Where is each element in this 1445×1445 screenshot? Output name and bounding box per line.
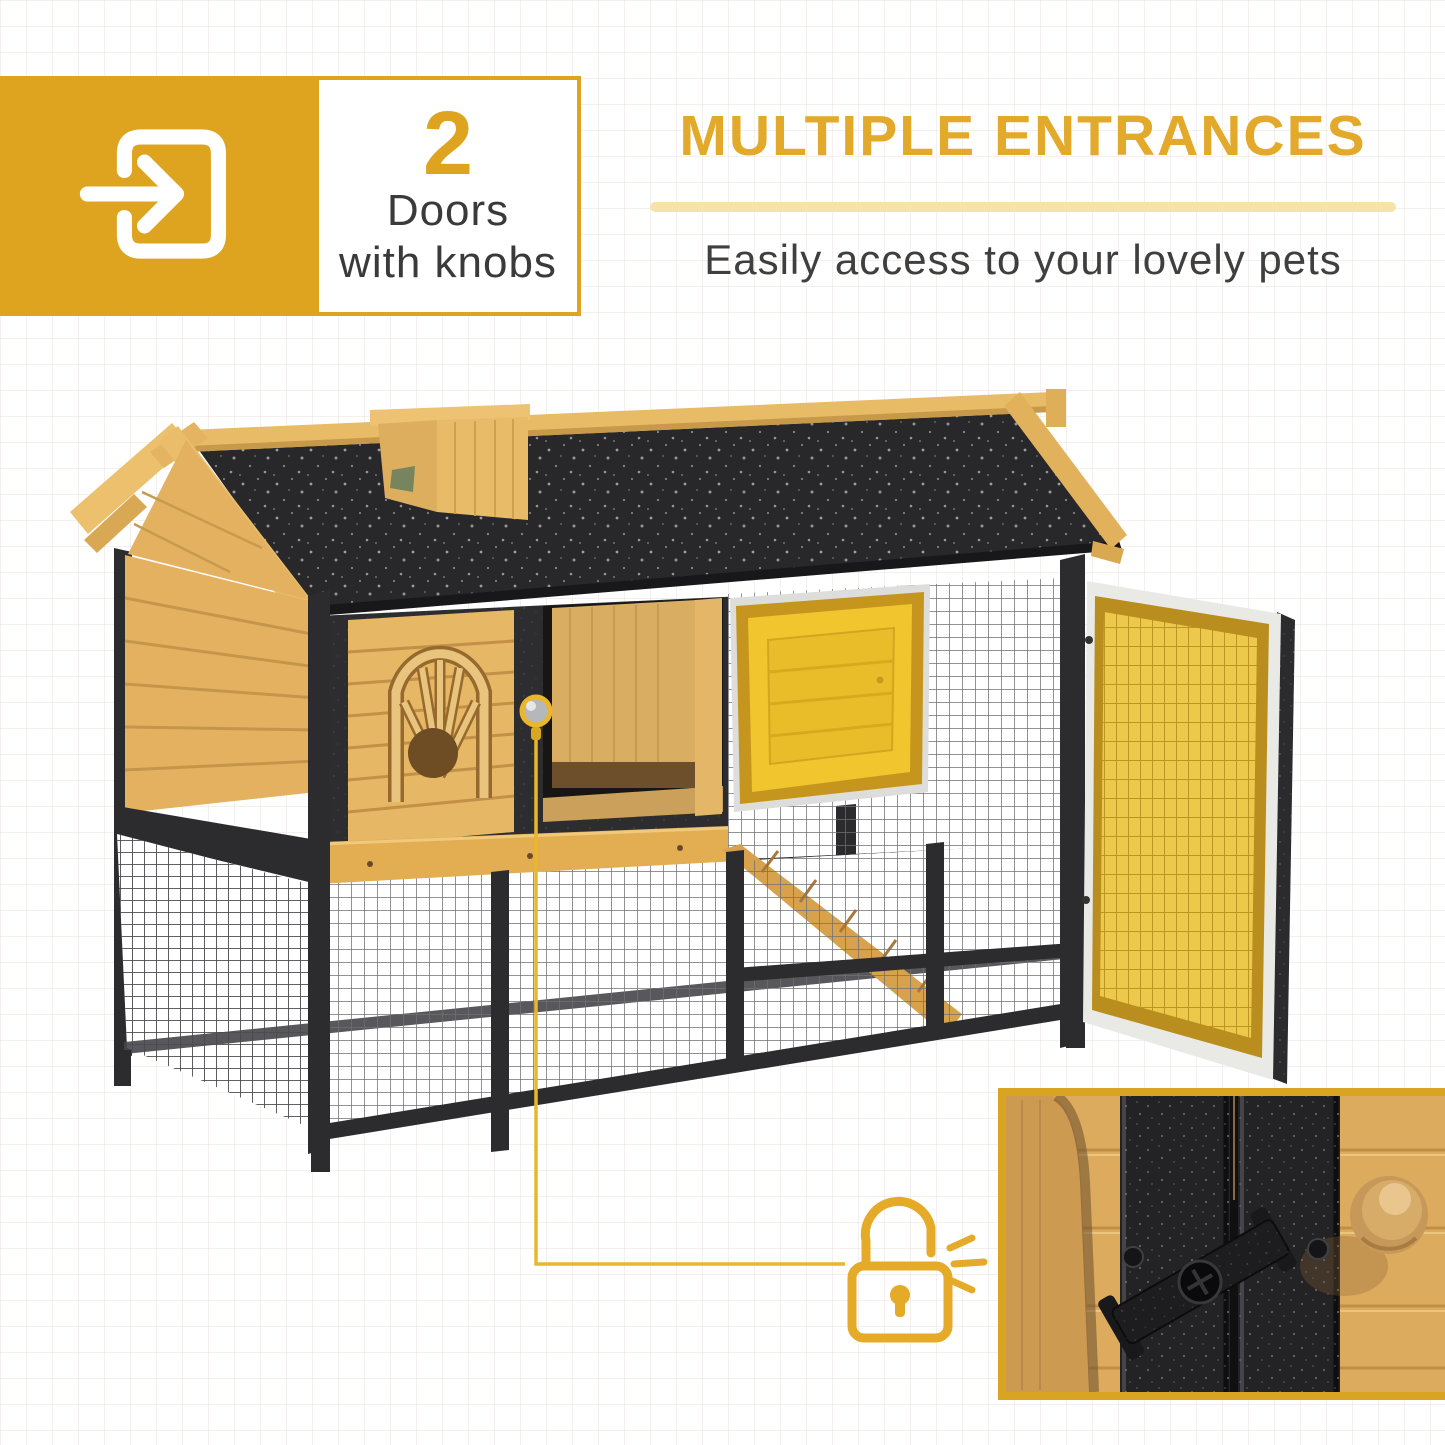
nest-door-highlighted <box>730 584 930 812</box>
page: 2 Doors with knobs MULTIPLE ENTRANCES Ea… <box>0 0 1445 1445</box>
arch-window-door <box>348 610 514 846</box>
padlock-unlocked-icon <box>852 1201 984 1338</box>
upper-front <box>317 578 1085 884</box>
latch-closeup-inset <box>1002 1092 1445 1396</box>
open-mesh-door <box>1082 581 1295 1084</box>
hutch <box>70 389 1295 1172</box>
screw <box>1308 1239 1328 1259</box>
interior-opening <box>543 598 723 822</box>
product-photo <box>0 0 1445 1445</box>
screw <box>1123 1247 1143 1267</box>
door-hole <box>408 728 458 778</box>
